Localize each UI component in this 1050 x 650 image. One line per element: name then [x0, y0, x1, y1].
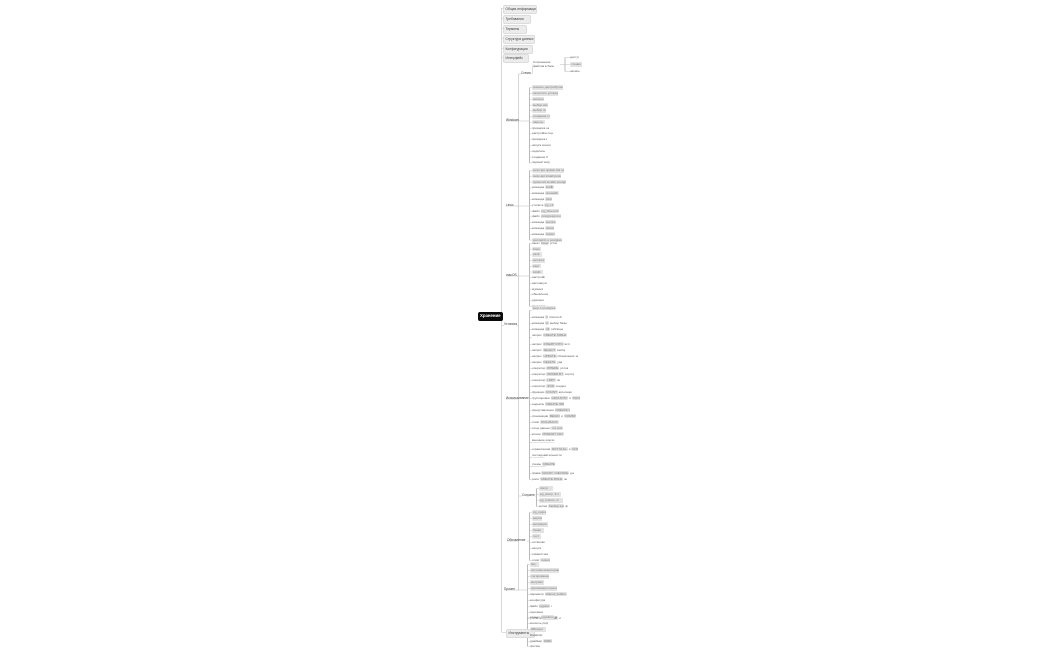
node-text: пароли	[550, 604, 552, 608]
node-text: схемы	[532, 462, 542, 466]
node-text: запуск	[532, 546, 541, 550]
node-text: выборка	[556, 348, 565, 352]
node-text: клиент	[530, 615, 541, 619]
code-chip: ROLLBACK	[540, 420, 558, 424]
code-chip: LIMIT	[546, 378, 556, 382]
code-chip: NOT NULL	[551, 447, 568, 451]
cluster-label[interactable]: Прочее	[504, 587, 517, 593]
node-text: файл	[530, 604, 539, 608]
code-chip: миграции	[532, 522, 548, 527]
node-text: macOS	[506, 273, 517, 277]
code-chip: shared_buffers	[545, 592, 567, 596]
node-text: соединения	[555, 384, 566, 388]
node-text: файл	[532, 209, 541, 213]
leaf-node[interactable]: пароль	[532, 120, 545, 125]
branch-node[interactable]: Установка	[504, 322, 517, 329]
cluster-label[interactable]: Windows	[506, 118, 519, 124]
leaf-node[interactable]: команда initdb	[532, 185, 556, 190]
node-text: Конфигурация	[506, 47, 528, 51]
leaf-node[interactable]: последовательности SERIAL счётчики	[532, 453, 570, 458]
code-chip: setup.exe	[532, 97, 544, 102]
node-text: ключи	[532, 432, 542, 436]
node-text: Термины	[506, 27, 520, 31]
code-chip: бэкап	[532, 528, 544, 533]
code-chip: запустить установщик	[532, 91, 558, 96]
code-chip: UPDATE	[543, 354, 557, 358]
code-chip: WHERE	[546, 366, 559, 370]
code-chip: CREATE ROLE	[540, 477, 563, 481]
leaf-node[interactable]: прочие	[530, 644, 541, 649]
node-text: запрос	[532, 333, 543, 337]
code-chip: JOIN	[546, 384, 555, 388]
node-text: Linux	[506, 203, 514, 207]
node-text: команда	[532, 185, 545, 189]
code-chip: pg_dump -F c	[539, 492, 561, 497]
leaf-node[interactable]: метрики	[530, 580, 544, 585]
code-chip: initdb	[532, 270, 543, 275]
leaf-node[interactable]: совместимость	[532, 552, 548, 557]
node-text: лимит	[556, 378, 560, 382]
node-text: создание таблицы	[532, 337, 558, 338]
node-text: вставка	[564, 342, 570, 346]
code-chip: DELETE	[543, 360, 557, 364]
node-text: Прочее	[504, 587, 515, 591]
leaf-node[interactable]: параметр shared_buffers память	[530, 592, 567, 597]
node-text: представления	[532, 408, 555, 412]
code-chip: systemctl enable postgresql	[532, 180, 566, 185]
node-text: проверка запуска	[532, 126, 549, 130]
code-chip: выбор порта	[532, 108, 546, 113]
node-text: автозапуск	[532, 281, 547, 285]
code-chip: выбор каталога	[532, 103, 548, 108]
code-chip: restart	[545, 232, 555, 236]
node-text: совместимость	[532, 552, 548, 556]
node-text: очистка	[558, 616, 561, 620]
cluster-label[interactable]: Схема	[521, 71, 532, 77]
leaf-node[interactable]: dump	[539, 486, 553, 491]
node-text: создание базы	[532, 155, 548, 159]
node-text: обновление записей	[557, 354, 578, 358]
mindmap-links	[0, 0, 1050, 650]
node-text: команда	[532, 327, 545, 331]
leaf-node[interactable]: cask	[532, 252, 542, 257]
leaf-node[interactable]: sudo apt update && upgrade	[532, 168, 564, 173]
node-text: удаление	[556, 360, 562, 364]
code-chip: psql	[532, 264, 541, 269]
leaf-node[interactable]: запуск консоли	[532, 143, 551, 148]
node-text: копия	[539, 504, 548, 508]
leaf-node[interactable]: удаление	[532, 298, 544, 303]
node-text: остановка	[532, 540, 545, 544]
node-text: команда	[532, 321, 545, 325]
cluster-label[interactable]: Сохранение	[522, 493, 535, 499]
code-chip: UNIQUE	[571, 447, 578, 451]
code-chip: backup.sql	[548, 504, 564, 508]
code-chip: brew	[541, 241, 549, 245]
code-chip: COMMIT	[564, 414, 576, 418]
node-text: запрос	[532, 354, 543, 358]
node-text: индексы	[532, 402, 545, 406]
leaf-node[interactable]: типы данных int, text	[532, 426, 568, 431]
code-chip: версии	[532, 516, 542, 521]
code-chip: SERIAL	[532, 457, 545, 458]
leaf-node[interactable]: проверка запуска	[532, 126, 549, 131]
leaf-node[interactable]: команда service	[532, 220, 556, 225]
code-chip: логирование	[530, 574, 549, 579]
leaf-node[interactable]: pg_restore -d	[539, 498, 563, 503]
node-text: Структура данных	[506, 37, 534, 41]
node-text: запрос	[532, 342, 543, 346]
node-text: типы данных	[532, 426, 551, 430]
code-chip: скачать дистрибутив	[532, 85, 563, 90]
leaf-node[interactable]: версии	[532, 516, 542, 521]
code-chip: psql	[545, 197, 552, 201]
node-text: пакет	[532, 241, 541, 245]
code-chip: COUNT	[545, 390, 558, 394]
leaf-node[interactable]: создание базы	[532, 155, 548, 160]
node-text: утилита	[532, 203, 544, 207]
node-text: подключение	[532, 149, 545, 153]
leaf-node[interactable]: транзакции BEGIN и COMMIT	[532, 414, 576, 419]
node-text: Требования	[506, 17, 524, 21]
code-chip: pg_ctl	[544, 203, 554, 207]
leaf-node[interactable]: initdb	[532, 270, 543, 275]
code-chip: система мониторинга	[530, 568, 559, 573]
leaf-node[interactable]: выбор каталога	[532, 103, 548, 108]
node-text: установка	[549, 241, 557, 245]
node-text: выбор базы	[549, 321, 567, 325]
code-chip: cask	[532, 252, 542, 257]
top-level-node[interactable]: Интерфейс	[503, 54, 529, 63]
node-text: запрос	[532, 348, 543, 352]
leaf-node[interactable]: группировка GROUP BY и HAVING	[532, 396, 580, 401]
node-text: сортировка	[564, 372, 574, 376]
node-text: связи	[555, 442, 564, 443]
node-text: Windows	[506, 118, 519, 122]
leaf-node[interactable]: команда \dt таблицы	[532, 327, 563, 332]
node-text: конфигурация	[530, 598, 545, 602]
code-chip: pgAdmin	[541, 615, 555, 619]
leaf-node[interactable]: консоль psql	[530, 621, 548, 626]
leaf-node[interactable]: запрос DELETE удаление	[532, 360, 562, 365]
leaf-node[interactable]: логирование	[530, 574, 549, 579]
node-text: команда	[532, 315, 545, 319]
code-chip: GRANT / REVOKE	[541, 471, 569, 475]
code-chip: FOREIGN KEY	[532, 442, 555, 443]
leaf-node[interactable]: файл pg_hba.conf	[532, 209, 559, 214]
node-text: драйвер	[530, 639, 543, 643]
leaf-node[interactable]: команда \l список баз	[532, 315, 562, 320]
leaf-node[interactable]: оператор LIMIT лимит	[532, 378, 560, 383]
leaf-node[interactable]: доступ	[570, 55, 579, 60]
code-chip: GROUP BY	[551, 396, 569, 400]
node-text: оператор	[532, 384, 546, 388]
leaf-node[interactable]: файл postgresql.conf	[532, 214, 561, 219]
leaf-node[interactable]: DataGrip	[530, 633, 543, 638]
leaf-node[interactable]: ограничения NOT NULL и UNIQUE	[532, 447, 578, 452]
leaf-node[interactable]: права GRANT / REVOKE доступ	[532, 471, 574, 476]
leaf-node[interactable]: команда createdb	[532, 191, 559, 196]
node-text: функции	[532, 390, 545, 394]
leaf-node[interactable]: запуск	[532, 546, 542, 551]
node-text: обновления	[532, 292, 548, 296]
node-text: Схема	[521, 71, 531, 75]
leaf-node[interactable]: команда \c выбор базы	[532, 321, 568, 326]
code-chip: brew	[532, 247, 541, 252]
node-text: удаление	[532, 298, 544, 302]
node-text: подключение к серверу	[532, 310, 566, 311]
leaf-node[interactable]: индексы CREATE INDEX	[532, 402, 564, 407]
leaf-node[interactable]: проверка версии	[532, 137, 547, 142]
code-chip: psql -U postgres	[532, 306, 556, 310]
leaf-node[interactable]: оператор JOIN соединения	[532, 384, 566, 389]
code-chip: CREATE INDEX	[545, 402, 564, 406]
code-chip: dump	[539, 486, 553, 491]
code-chip: BEGIN	[549, 414, 560, 418]
code-chip: ORDER BY	[546, 372, 564, 376]
code-chip: faq	[530, 562, 539, 567]
leaf-node[interactable]: первый запуск	[532, 160, 550, 165]
code-chip: чтение	[570, 62, 582, 67]
node-text: прочие	[530, 644, 540, 648]
code-chip: createdb	[545, 191, 559, 195]
node-text: команда	[532, 232, 545, 236]
cluster-label[interactable]: Использование	[506, 396, 530, 402]
leaf-node[interactable]: автозапуск	[532, 281, 547, 286]
code-chip: initdb	[545, 185, 554, 189]
code-chip: CREATE VIEW	[555, 408, 570, 412]
leaf-node[interactable]: brew	[532, 247, 541, 252]
node-text: группировка	[532, 396, 551, 400]
node-text: доступ	[569, 471, 574, 475]
leaf-node[interactable]: pg_upgrade	[532, 510, 546, 515]
leaf-node[interactable]: ключи PRIMARY KEY	[532, 432, 572, 437]
node-text: оператор	[532, 372, 546, 376]
node-text: транзакции	[532, 414, 549, 418]
cluster-label[interactable]: Linux	[506, 203, 516, 209]
code-chip: reload	[545, 226, 554, 230]
node-text: журналы	[532, 287, 543, 291]
leaf-node[interactable]: faq	[530, 562, 539, 567]
node-text: запрос	[532, 360, 543, 364]
code-chip: пароль	[532, 120, 545, 125]
leaf-node[interactable]: система мониторинга	[530, 568, 559, 573]
node-text: параметр	[530, 592, 545, 596]
code-chip: pg_hba.conf	[541, 209, 559, 213]
node-text: Общая информация	[506, 7, 537, 11]
node-text: первый запуск	[532, 160, 550, 164]
leaf-node[interactable]: создание службы	[532, 114, 550, 119]
code-chip: pgpass	[539, 604, 551, 608]
leaf-node[interactable]: команда reload	[532, 226, 554, 231]
code-chip: HAVING	[572, 396, 580, 400]
code-chip: pg_upgrade	[532, 510, 546, 515]
node-text: счётчики	[545, 457, 559, 458]
leaf-node[interactable]: производительность	[530, 586, 557, 591]
node-text: консоль psql	[530, 621, 548, 625]
node-text: переменные	[530, 610, 543, 614]
leaf-node[interactable]: тест	[532, 534, 541, 539]
code-chip: тест	[532, 534, 541, 539]
leaf-node[interactable]: запрос UPDATE обновление записей	[532, 354, 578, 359]
leaf-node[interactable]: psql	[532, 264, 541, 269]
node-text: команда	[532, 220, 545, 224]
code-chip: производительность	[530, 586, 557, 591]
node-text: внешние ключи	[532, 438, 554, 442]
top-level-node[interactable]: Конфигурация	[503, 45, 533, 54]
leaf-node[interactable]: оператор ORDER BY сортировка	[532, 372, 574, 377]
node-text: Установка	[504, 322, 517, 326]
leaf-node[interactable]: команда psql	[532, 197, 554, 202]
node-text: настройка переменных	[532, 131, 553, 135]
leaf-node[interactable]: бэкап	[532, 528, 544, 533]
node-text: условия	[559, 366, 568, 370]
code-chip: pg_restore -d	[539, 498, 563, 503]
leaf-node[interactable]: services	[532, 258, 545, 263]
node-text: пользователи	[563, 477, 567, 481]
node-text: Интерфейс	[506, 56, 523, 60]
top-level-node[interactable]: Термины	[503, 25, 527, 34]
cluster-label[interactable]: Обновление	[507, 538, 527, 544]
leaf-node[interactable]: чтение	[570, 62, 582, 67]
leaf-node[interactable]: журналы	[532, 287, 543, 292]
node-text: команда	[532, 197, 545, 201]
leaf-node[interactable]: psql -U postgres подключение к серверу	[532, 306, 574, 311]
leaf-node[interactable]: команда restart	[532, 232, 557, 237]
code-chip: sudo apt install postgresql	[532, 174, 561, 179]
leaf-node[interactable]: скачать дистрибутив	[532, 85, 563, 90]
node-text: файл	[532, 214, 541, 218]
leaf-node[interactable]: запрос CREATE TABLE создание таблицы	[532, 333, 576, 338]
node-text: ограничения	[532, 447, 551, 451]
leaf-node[interactable]: DBeaver	[530, 627, 546, 632]
node-text: оператор	[532, 378, 546, 382]
node-text: Обновление	[507, 538, 525, 542]
leaf-node[interactable]: pg_dump -F c	[539, 492, 561, 497]
leaf-node[interactable]: откат ROLLBACK	[532, 420, 562, 425]
code-chip: JDBC	[543, 639, 552, 643]
node-text: список баз	[548, 315, 562, 319]
node-text: агрегация	[558, 390, 572, 394]
leaf-node[interactable]: выбор порта	[532, 108, 546, 113]
code-chip: service	[545, 220, 556, 224]
code-chip: postgresql.conf	[541, 214, 561, 218]
leaf-node[interactable]: запрос INSERT INTO вставка	[532, 342, 570, 347]
node-text: команда	[532, 226, 545, 230]
node-text: права	[532, 471, 541, 475]
node-text: DataGrip	[530, 633, 542, 637]
node-text: запуск консоли	[532, 143, 551, 147]
node-text: запись	[570, 69, 580, 73]
leaf-node[interactable]: внешние ключи FOREIGN KEY связи	[532, 438, 566, 443]
node-text: последовательности	[532, 453, 562, 457]
node-text: Инструменты	[509, 631, 530, 635]
mindmap-root-node[interactable]: Хранение	[478, 312, 503, 321]
leaf-node[interactable]: настройки	[532, 275, 545, 280]
leaf-node[interactable]: оператор WHERE условия	[532, 366, 568, 371]
leaf-node[interactable]: запустить установщик	[532, 91, 558, 96]
node-text: проверка версии	[532, 137, 547, 141]
cluster-mid-node[interactable]: Сохранение файлов в базе данных	[533, 60, 560, 69]
code-chip: CREATE TABLE	[543, 333, 567, 337]
leaf-node[interactable]: setup.exe	[532, 97, 544, 102]
leaf-node[interactable]: подключение	[532, 149, 545, 154]
code-chip: DBeaver	[530, 627, 546, 632]
leaf-node[interactable]: systemctl enable postgresql	[532, 180, 566, 185]
leaf-node[interactable]: схемы CREATE SCHEMA	[532, 462, 562, 467]
code-chip: INSERT INTO	[543, 342, 564, 346]
leaf-node[interactable]: представления CREATE VIEW	[532, 408, 570, 413]
leaf-node[interactable]: остановка	[532, 540, 545, 545]
leaf-node[interactable]: файл pgpass пароли	[530, 604, 552, 609]
leaf-node[interactable]: миграции	[532, 522, 548, 527]
code-chip: метрики	[530, 580, 544, 585]
node-text: интерфейс	[554, 615, 557, 619]
node-text: доступ	[570, 55, 579, 59]
node-text: оператор	[532, 366, 546, 370]
top-level-node[interactable]: Требования	[503, 15, 531, 24]
code-chip: SELECT	[543, 348, 557, 352]
code-chip: restore	[540, 558, 550, 562]
code-chip: создание службы	[532, 114, 550, 119]
node-text: роли	[532, 477, 540, 481]
top-level-node[interactable]: Структура данных	[503, 35, 535, 44]
leaf-node[interactable]: функции COUNT агрегация	[532, 390, 572, 395]
code-chip: PRIMARY KEY	[542, 432, 565, 436]
leaf-node[interactable]: запрос SELECT выборка	[532, 348, 565, 353]
node-text: команда	[532, 191, 545, 195]
mindmap-canvas: Хранение Общая информацияТребованияТерми…	[0, 0, 1050, 650]
leaf-node[interactable]: утилита pg_ctl	[532, 203, 557, 208]
code-chip: int, text	[551, 426, 563, 430]
leaf-node[interactable]: клиент pgAdmin интерфейс	[530, 615, 557, 620]
node-text: таблицы	[550, 327, 563, 331]
leaf-node[interactable]: копия backup.sql файл	[539, 504, 568, 509]
node-text: настройки	[532, 275, 545, 279]
node-text: файл	[564, 504, 568, 508]
leaf-node[interactable]: роли CREATE ROLE пользователи	[532, 477, 567, 482]
code-chip: sudo apt update && upgrade	[532, 168, 564, 173]
node-text: Сохранение	[522, 493, 535, 497]
code-chip: services	[532, 258, 545, 263]
cluster-label[interactable]: macOS	[506, 273, 517, 279]
top-level-node[interactable]: Общая информация	[503, 5, 537, 14]
node-text: Использование	[506, 396, 529, 400]
leaf-node[interactable]: настройка переменных	[532, 131, 553, 136]
leaf-node[interactable]: запись	[570, 69, 580, 74]
leaf-node[interactable]: конфигурация	[530, 598, 545, 603]
leaf-node[interactable]: пакет brew установка	[532, 241, 557, 246]
leaf-node[interactable]: обновления	[532, 292, 548, 297]
leaf-node[interactable]: sudo apt install postgresql	[532, 174, 561, 179]
node-text: Сохранение файлов в базе данных	[533, 60, 554, 69]
